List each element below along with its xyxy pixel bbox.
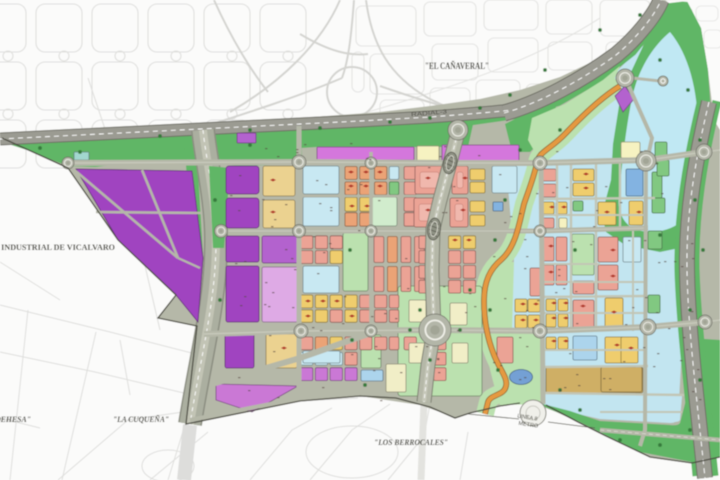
svg-text:"LA CUQUEÑA": "LA CUQUEÑA" — [113, 415, 169, 424]
svg-text:"EL CAÑAVERAL": "EL CAÑAVERAL" — [425, 61, 489, 71]
svg-text:NO INDUSTRIAL DE VICALVARO: NO INDUSTRIAL DE VICALVARO — [0, 243, 115, 252]
svg-text:"LOS BERROCALES": "LOS BERROCALES" — [374, 437, 448, 447]
svg-text:DEHESA": DEHESA" — [0, 415, 31, 424]
